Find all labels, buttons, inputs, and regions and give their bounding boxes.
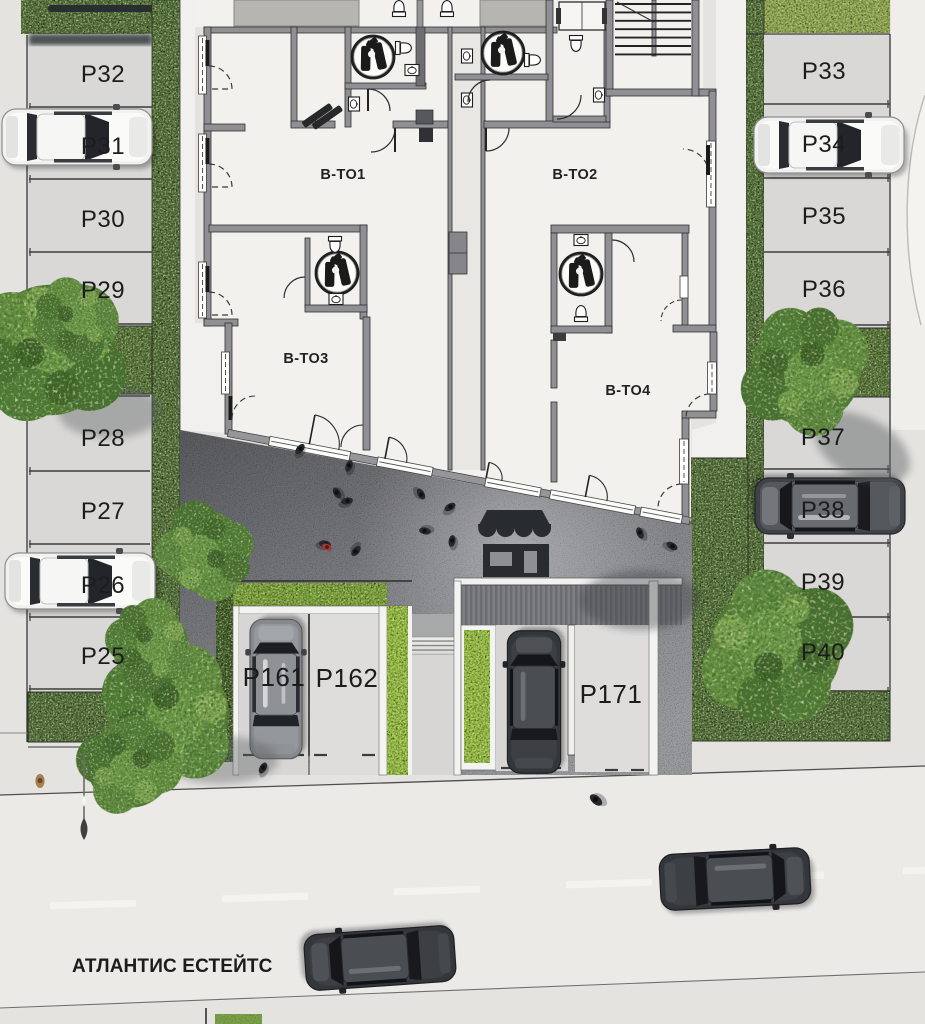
svg-text:P38: P38: [801, 497, 845, 524]
svg-text:P30: P30: [81, 206, 125, 233]
svg-text:P162: P162: [316, 663, 379, 693]
svg-text:B-TO2: B-TO2: [552, 167, 597, 183]
svg-text:P32: P32: [81, 61, 125, 88]
svg-text:B-TO3: B-TO3: [283, 351, 328, 367]
svg-text:P34: P34: [802, 131, 846, 158]
svg-text:P36: P36: [802, 276, 846, 303]
svg-text:P39: P39: [801, 569, 845, 596]
svg-text:P29: P29: [81, 277, 125, 304]
svg-text:P25: P25: [81, 643, 125, 670]
svg-text:P33: P33: [802, 58, 846, 85]
svg-text:P171: P171: [580, 679, 643, 709]
svg-text:P28: P28: [81, 425, 125, 452]
svg-text:P40: P40: [801, 639, 845, 666]
svg-text:P161: P161: [243, 662, 306, 692]
svg-text:P31: P31: [81, 133, 125, 160]
svg-text:B-TO4: B-TO4: [605, 383, 650, 399]
svg-text:P35: P35: [802, 203, 846, 230]
svg-text:B-TO1: B-TO1: [320, 167, 365, 183]
svg-text:P37: P37: [801, 424, 845, 451]
svg-text:P27: P27: [81, 498, 125, 525]
svg-text:АТЛАНТИС ЕСТЕЙТС: АТЛАНТИС ЕСТЕЙТС: [72, 955, 273, 977]
svg-text:P26: P26: [81, 572, 125, 599]
